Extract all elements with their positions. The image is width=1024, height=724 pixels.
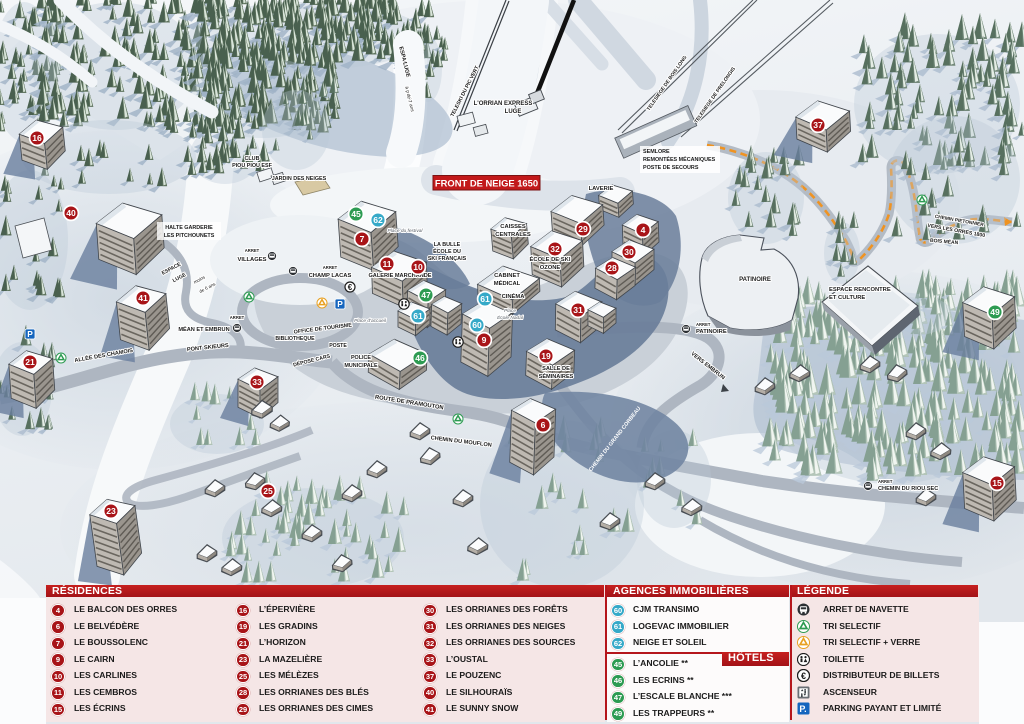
- svg-text:MÉDICAL: MÉDICAL: [494, 279, 521, 287]
- svg-text:VILLAGES: VILLAGES: [238, 257, 267, 263]
- svg-text:Place du festival: Place du festival: [388, 228, 424, 234]
- svg-text:47: 47: [421, 290, 431, 300]
- svg-text:6: 6: [541, 420, 546, 430]
- svg-text:45: 45: [351, 209, 361, 219]
- svg-text:16: 16: [32, 133, 42, 143]
- svg-text:23: 23: [106, 506, 116, 516]
- svg-text:49: 49: [990, 307, 1000, 317]
- svg-text:60: 60: [472, 320, 482, 330]
- svg-text:LUGE: LUGE: [505, 109, 522, 115]
- svg-text:POLICE: POLICE: [351, 355, 371, 361]
- svg-text:MÉAN ET EMBRUN: MÉAN ET EMBRUN: [178, 325, 229, 333]
- svg-text:41: 41: [138, 293, 148, 303]
- svg-text:L'ORRIAN EXPRESS: L'ORRIAN EXPRESS: [474, 101, 533, 107]
- svg-text:32: 32: [550, 244, 560, 254]
- svg-text:ARRET: ARRET: [230, 315, 245, 320]
- svg-text:25: 25: [263, 486, 273, 496]
- svg-text:9: 9: [482, 335, 487, 345]
- svg-text:P: P: [27, 329, 33, 339]
- svg-text:19: 19: [541, 351, 551, 361]
- svg-text:ÉCOLE DU: ÉCOLE DU: [433, 247, 461, 255]
- svg-text:POSTE: POSTE: [329, 343, 347, 349]
- svg-text:ET CULTURE: ET CULTURE: [829, 295, 865, 301]
- svg-text:PIOU PIOU ESF: PIOU PIOU ESF: [232, 163, 273, 169]
- svg-text:€: €: [801, 671, 806, 681]
- svg-text:21: 21: [25, 357, 35, 367]
- svg-text:33: 33: [252, 377, 262, 387]
- svg-text:Place d'accueil: Place d'accueil: [354, 318, 387, 324]
- svg-text:LES PITCHOUNETS: LES PITCHOUNETS: [164, 233, 215, 239]
- svg-text:REMONTÉES MÉCANIQUES: REMONTÉES MÉCANIQUES: [643, 155, 716, 163]
- svg-text:ARRET: ARRET: [323, 265, 338, 270]
- svg-text:P: P: [337, 299, 343, 309]
- svg-text:Place: Place: [504, 308, 516, 314]
- svg-text:ESPACE RENCONTRE: ESPACE RENCONTRE: [829, 287, 891, 293]
- svg-text:7: 7: [360, 234, 365, 244]
- svg-text:LA BULLE: LA BULLE: [434, 242, 461, 248]
- svg-text:FRONT DE NEIGE 1650: FRONT DE NEIGE 1650: [435, 178, 538, 189]
- svg-text:37: 37: [813, 120, 823, 130]
- svg-text:28: 28: [607, 263, 617, 273]
- svg-text:40: 40: [66, 208, 76, 218]
- svg-text:CENTRALES: CENTRALES: [495, 232, 531, 238]
- svg-text:31: 31: [573, 305, 583, 315]
- svg-text:BIBLIOTHEQUE: BIBLIOTHEQUE: [275, 336, 315, 342]
- svg-text:ARRET: ARRET: [245, 248, 260, 253]
- svg-text:SEMLORE: SEMLORE: [643, 149, 670, 155]
- svg-text:POSTE DE SECOURS: POSTE DE SECOURS: [643, 165, 699, 171]
- svg-text:CAISSES: CAISSES: [500, 224, 526, 230]
- svg-text:11: 11: [382, 259, 391, 269]
- svg-text:PATINOIRE: PATINOIRE: [696, 329, 727, 335]
- svg-text:ARRET: ARRET: [696, 322, 711, 327]
- svg-text:MUNICIPALE: MUNICIPALE: [344, 363, 378, 369]
- svg-text:61: 61: [413, 311, 423, 321]
- svg-text:10: 10: [413, 262, 423, 272]
- svg-text:OZONE: OZONE: [540, 265, 561, 271]
- svg-text:PATINOIRE: PATINOIRE: [739, 277, 771, 283]
- svg-text:CHAMP LACAS: CHAMP LACAS: [309, 273, 352, 279]
- svg-text:JARDIN DES NEIGES: JARDIN DES NEIGES: [272, 176, 327, 182]
- svg-text:29: 29: [578, 224, 588, 234]
- svg-text:15: 15: [992, 478, 1002, 488]
- svg-text:École Nadal: École Nadal: [497, 314, 524, 321]
- svg-text:46: 46: [415, 353, 425, 363]
- svg-text:HALTE GARDERIE: HALTE GARDERIE: [165, 225, 213, 231]
- svg-text:ÉCOLE DE SKI: ÉCOLE DE SKI: [530, 255, 571, 263]
- svg-text:CHEMIN DU RIOU SEC: CHEMIN DU RIOU SEC: [878, 486, 938, 492]
- svg-text:CLUB: CLUB: [245, 156, 260, 162]
- svg-text:P.: P.: [799, 704, 806, 714]
- svg-text:LAVERIE: LAVERIE: [589, 186, 614, 192]
- svg-text:61: 61: [480, 294, 490, 304]
- svg-text:62: 62: [373, 215, 383, 225]
- svg-text:30: 30: [624, 247, 634, 257]
- svg-text:SKI FRANÇAIS: SKI FRANÇAIS: [428, 256, 467, 262]
- svg-text:SALLE DE: SALLE DE: [542, 366, 570, 372]
- svg-text:CABINET: CABINET: [494, 273, 520, 279]
- svg-text:CINÉMA: CINÉMA: [502, 292, 526, 300]
- svg-text:ARRET: ARRET: [878, 479, 893, 484]
- svg-text:4: 4: [641, 225, 646, 235]
- svg-text:SÉMINAIRES: SÉMINAIRES: [539, 372, 574, 380]
- svg-text:€: €: [348, 283, 353, 292]
